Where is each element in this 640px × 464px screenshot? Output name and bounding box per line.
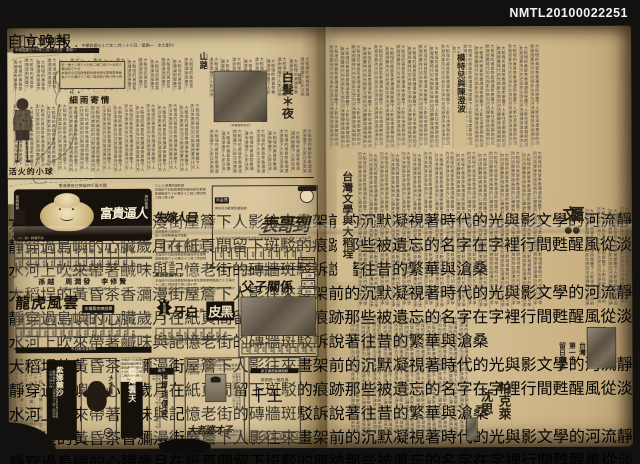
text-column: 大稻埕的黃昏茶香瀰漫街屋簷下人影往來畫架前的沉默凝視著時代的光與影文學的河流靜靜… (161, 58, 170, 92)
text-columns: 大稻埕的黃昏茶香瀰漫街屋簷下人影往來畫架前的沉默凝視著時代的光與影文學的河流靜靜… (329, 44, 539, 149)
theater-cell: 樂聲 (118, 244, 126, 257)
text-column: 大稻埕的黃昏茶香瀰漫街屋簷下人影往來畫架前的沉默凝視著時代的光與影文學的河流靜靜… (36, 58, 45, 92)
headline-model-chen: 模特兒與陳澄波 (453, 52, 466, 148)
text-column: 大稻埕的黃昏茶香瀰漫街屋簷下人影往來畫架前的沉默凝視著時代的光與影文學的河流靜靜… (244, 129, 253, 173)
theater-cell: 樂聲 (54, 244, 62, 257)
theater-cell: 樂聲 (63, 329, 71, 336)
text-column: 大稻埕的黃昏茶香瀰漫街屋簷下人影往來畫架前的沉默凝視著時代的光與影文學的河流靜靜… (13, 58, 22, 92)
text-column: 大稻埕的黃昏茶香瀰漫街屋簷下人影往來畫架前的沉默凝視著時代的光與影文學的河流靜靜… (184, 58, 193, 92)
theater-cell: 樂聲 (275, 432, 283, 439)
theater-cell: 樂聲 (47, 315, 55, 327)
text-column: 大稻埕的黃昏茶香瀰漫街屋簷下人影往來畫架前的沉默凝視著時代的光與影文學的河流靜靜… (519, 44, 528, 148)
theater-cell: 樂聲 (70, 259, 78, 266)
theater-cell: 樂聲 (249, 344, 257, 353)
text-column: 大稻埕的黃昏茶香瀰漫街屋簷下人影往來畫架前的沉默凝視著時代的光與影文學的河流靜靜… (102, 104, 111, 172)
theater-grid: 樂聲樂聲樂聲樂聲樂聲樂聲 (251, 431, 299, 440)
gorilla-art (87, 381, 107, 411)
theater-cell: 樂聲 (119, 315, 127, 327)
headline-painter-l3: 留日畫家 (556, 342, 565, 378)
ad-line: 本報訊今日起隆重獻映優待學生軍警票價每張六十元場次十二時二時四時六時八時十時 (155, 287, 235, 296)
release-badges: 上映 第二週 賣座 (301, 272, 315, 295)
ad-line: 本報訊今日起隆重獻映優待學生軍警票價每張六十元場次十二時二時四時六時八時十時 (152, 375, 162, 431)
theater-cell: 樂聲 (110, 259, 118, 266)
text-column: 大稻埕的黃昏茶香瀰漫街屋簷下人影往來畫架前的沉默凝視著時代的光與影文學的河流靜靜… (445, 151, 455, 309)
ad-actor-photo (263, 384, 287, 414)
ad-photo-montage (241, 297, 315, 335)
discount-chip: 優待2人 (299, 257, 316, 264)
headline-contemplation: 沈思 (477, 389, 493, 425)
theater-cell: 樂聲 (127, 329, 135, 336)
text-column: 大稻埕的黃昏茶香瀰漫街屋簷下人影往來畫架前的沉默凝視著時代的光與影文學的河流靜靜… (221, 129, 230, 173)
text-column: 大稻埕的黃昏茶香瀰漫街屋簷下人影往來畫架前的沉默凝視著時代的光與影文學的河流靜靜… (585, 207, 594, 307)
theater-cell: 樂聲 (283, 432, 291, 439)
theater-cell: 樂聲 (110, 244, 118, 257)
theater-cell: 樂聲 (103, 329, 111, 336)
ad-cast-line: 本報訊今日起隆重獻映優待學生軍警票價每張六十元場次十二時二時四時六時八時十時 (215, 236, 311, 245)
text-column: 大稻埕的黃昏茶香瀰漫街屋簷下人影往來畫架前的沉默凝視著時代的光與影文學的河流靜靜… (434, 151, 444, 309)
theater-cell: 樂聲 (30, 244, 38, 257)
text-column: 大稻埕的黃昏茶香瀰漫街屋簷下人影往來畫架前的沉默凝視著時代的光與影文學的河流靜靜… (620, 207, 629, 307)
theater-cell: 樂聲 (239, 249, 247, 260)
text-column: 大稻埕的黃昏茶香瀰漫街屋簷下人影往來畫架前的沉默凝視著時代的光與影文學的河流靜靜… (157, 104, 166, 172)
theater-cell: 樂聲 (47, 329, 55, 336)
theater-cell: 樂聲 (31, 330, 39, 337)
theater-grid: 樂聲樂聲樂聲樂聲樂聲樂聲樂聲樂聲樂聲樂聲樂聲樂聲樂聲樂聲樂聲 (14, 243, 152, 259)
text-column: 大稻埕的黃昏茶香瀰漫街屋簷下人影往來畫架前的沉默凝視著時代的光與影文學的河流靜靜… (268, 129, 277, 173)
text-column: 大稻埕的黃昏茶香瀰漫街屋簷下人影往來畫架前的沉默凝視著時代的光與影文學的河流靜靜… (150, 58, 159, 92)
text-column: 大稻埕的黃昏茶香瀰漫街屋簷下人影往來畫架前的沉默凝視著時代的光與影文學的河流靜靜… (467, 151, 477, 309)
theater-grid: 樂聲樂聲樂聲樂聲樂聲樂聲樂聲樂聲樂聲樂聲樂聲樂聲樂聲樂聲樂聲 (15, 314, 151, 329)
theater-cell: 樂聲 (22, 244, 30, 257)
theater-cell: 樂聲 (31, 316, 39, 328)
text-column: 大稻埕的黃昏茶香瀰漫街屋簷下人影往來畫架前的沉默凝視著時代的光與影文學的河流靜靜… (522, 151, 532, 309)
masthead: ✿ 自立副刊 中華民國七十六年二月二十三日 星期一 (13, 34, 99, 57)
cartoon-face-icon (300, 189, 314, 203)
text-column: 大稻埕的黃昏茶香瀰漫街屋簷下人影往來畫架前的沉默凝視著時代的光與影文學的河流靜靜… (597, 207, 606, 307)
archive-id-label: NMTL20100022251 (509, 6, 628, 20)
text-column: 大稻埕的黃昏茶香瀰漫街屋簷下人影往來畫架前的沉默凝視著時代的光與影文學的河流靜靜… (608, 207, 617, 307)
theater-cell: 樂聲 (305, 344, 313, 353)
text-column: 大稻埕的黃昏茶香瀰漫街屋簷下人影往來畫架前的沉默凝視著時代的光與影文學的河流靜靜… (511, 151, 521, 309)
text-columns: 大稻埕的黃昏茶香瀰漫街屋簷下人影往來畫架前的沉默凝視著時代的光與影文學的河流靜靜… (585, 207, 629, 307)
ad-line: 本報訊今日起隆重獻映優待學生軍警票價每張六十元場次十二時二時四時六時八時十時 (232, 372, 242, 412)
text-column: 大稻埕的黃昏茶香瀰漫街屋簷下人影往來畫架前的沉默凝視著時代的光與影文學的河流靜靜… (374, 45, 383, 149)
text-column: 大稻埕的黃昏茶香瀰漫街屋簷下人影往來畫架前的沉默凝視著時代的光與影文學的河流靜靜… (478, 151, 488, 309)
text-column: 大稻埕的黃昏茶香瀰漫街屋簷下人影往來畫架前的沉默凝視著時代的光與影文學的河流靜靜… (279, 129, 288, 173)
text-column: 大稻埕的黃昏茶香瀰漫街屋簷下人影往來畫架前的沉默凝視著時代的光與影文學的河流靜靜… (233, 129, 242, 173)
theater-cell: 樂聲 (231, 249, 239, 260)
badge: 上映 (301, 272, 315, 279)
theater-cell: 樂聲 (126, 259, 134, 266)
theater-cell: 樂聲 (215, 249, 223, 260)
theater-cell: 樂聲 (279, 249, 287, 260)
theater-grid: 樂聲樂聲樂聲樂聲樂聲樂聲樂聲樂聲樂聲樂聲樂聲樂聲樂聲樂聲樂聲 (14, 258, 152, 268)
theater-cell: 樂聲 (291, 432, 299, 439)
text-column: 大稻埕的黃昏茶香瀰漫街屋簷下人影往來畫架前的沉默凝視著時代的光與影文學的河流靜靜… (91, 104, 100, 172)
text-column: 大稻埕的黃昏茶香瀰漫街屋簷下人影往來畫架前的沉默凝視著時代的光與影文學的河流靜靜… (405, 315, 415, 437)
text-column: 大稻埕的黃昏茶香瀰漫街屋簷下人影往來畫架前的沉默凝視著時代的光與影文學的河流靜靜… (24, 104, 33, 172)
text-column: 大稻埕的黃昏茶香瀰漫街屋簷下人影往來畫架前的沉默凝視著時代的光與影文學的河流靜靜… (430, 44, 439, 148)
movie-title-part: 皮黑 (206, 301, 234, 320)
text-column: 大稻埕的黃昏茶香瀰漫街屋簷下人影往來畫架前的沉默凝視著時代的光與影文學的河流靜靜… (497, 44, 506, 148)
movie-ad-heipibaiya: 票房居高不下 本報訊今日起隆重獻映優待學生軍警票價每張六十元場次十二時二時四時六… (154, 271, 236, 353)
movie-title-part: 牙白 (173, 302, 197, 321)
ad-line: 本報訊今日起隆重獻映優待學生軍警票價每張六十元場次十二時二時四時六時八時十時 (156, 337, 234, 346)
text-column: 大稻埕的黃昏茶香瀰漫街屋簷下人影往來畫架前的沉默凝視著時代的光與影文學的河流靜靜… (363, 45, 372, 149)
theater-cell: 樂聲 (15, 330, 23, 337)
theater-cell: 樂聲 (71, 315, 79, 327)
ad-bottom-bar: 今日起全省聯映 (15, 347, 151, 353)
theater-cell: 樂聲 (155, 242, 163, 252)
text-column: 大稻埕的黃昏茶香瀰漫街屋簷下人影往來畫架前的沉默凝視著時代的光與影文學的河流靜靜… (300, 57, 309, 97)
text-column: 大稻埕的黃昏茶香瀰漫街屋簷下人影往來畫架前的沉默凝視著時代的光與影文學的河流靜靜… (474, 44, 483, 148)
theater-cell: 樂聲 (86, 244, 94, 257)
text-column: 大稻埕的黃昏茶香瀰漫街屋簷下人影往來畫架前的沉默凝視著時代的光與影文學的河流靜靜… (369, 152, 379, 310)
theater-cell: 樂聲 (39, 316, 47, 328)
movie-ad-qianwang: 新正春節賀歲鉅獻 周潤發一賭百萬 千王 樂聲樂聲樂聲樂聲樂聲樂聲 (249, 357, 301, 443)
text-column: 大稻埕的黃昏茶香瀰漫街屋簷下人影往來畫架前的沉默凝視著時代的光與影文學的河流靜靜… (437, 314, 447, 436)
ad-line: 本報訊今日起隆重獻映優待學生軍警票價每張六十元場次十二時二時四時六時八時十時 (49, 370, 59, 420)
text-column: 大稻埕的黃昏茶香瀰漫街屋簷下人影往來畫架前的沉默凝視著時代的光與影文學的河流靜靜… (441, 44, 450, 148)
theater-cell: 樂聲 (195, 241, 203, 251)
theater-cell: 樂聲 (54, 259, 62, 266)
text-column: 大稻埕的黃昏茶香瀰漫街屋簷下人影往來畫架前的沉默凝視著時代的光與影文學的河流靜靜… (329, 45, 338, 149)
theater-cell: 樂聲 (118, 259, 126, 266)
text-column: 大稻埕的黃昏茶香瀰漫街屋簷下人影往來畫架前的沉默凝視著時代的光與影文學的河流靜靜… (47, 58, 56, 92)
text-column: 大稻埕的黃昏茶香瀰漫街屋簷下人影往來畫架前的沉默凝視著時代的光與影文學的河流靜靜… (190, 104, 199, 172)
theater-cell: 樂聲 (179, 242, 187, 252)
theater-cell: 樂聲 (23, 316, 31, 328)
photo-caption: （本報資料照片） (216, 123, 266, 127)
theater-cell: 樂聲 (46, 244, 54, 257)
theater-cell: 樂聲 (111, 329, 119, 336)
text-column: 大稻埕的黃昏茶香瀰漫街屋簷下人影往來畫架前的沉默凝視著時代的光與影文學的河流靜靜… (168, 104, 177, 172)
theater-cell: 樂聲 (39, 330, 47, 337)
theater-cell: 樂聲 (126, 244, 134, 257)
ad-topline: 本日起 (82, 359, 116, 363)
theater-grid: 樂聲樂聲樂聲樂聲樂聲樂聲樂聲樂聲樂聲 (241, 343, 315, 354)
text-column: 大稻埕的黃昏茶香瀰漫街屋簷下人影往來畫架前的沉默凝視著時代的光與影文學的河流靜靜… (385, 45, 394, 149)
theater-cell: 樂聲 (78, 259, 86, 266)
painter-photo (587, 328, 615, 368)
theater-cell: 樂聲 (267, 432, 275, 439)
movie-ad-dalao: 新春賀歲強片 本報訊今日起隆重獻映優待學生軍警票價每張六十元場次十二時二時四時六… (185, 357, 245, 443)
text-column: 大稻埕的黃昏茶香瀰漫街屋簷下人影往來畫架前的沉默凝視著時代的光與影文學的河流靜靜… (485, 44, 494, 148)
text-column: 大稻埕的黃昏茶香瀰漫街屋簷下人影往來畫架前的沉默凝視著時代的光與影文學的河流靜靜… (69, 104, 78, 172)
text-column: 大稻埕的黃昏茶香瀰漫街屋簷下人影往來畫架前的沉默凝視著時代的光與影文學的河流靜靜… (47, 104, 56, 172)
text-column: 大稻埕的黃昏茶香瀰漫街屋簷下人影往來畫架前的沉默凝視著時代的光與影文學的河流靜靜… (394, 315, 404, 437)
text-column: 大稻埕的黃昏茶香瀰漫街屋簷下人影往來畫架前的沉默凝視著時代的光與影文學的河流靜靜… (36, 104, 45, 172)
theater-cell: 樂聲 (241, 344, 249, 353)
text-column: 大稻埕的黃昏茶香瀰漫街屋簷下人影往來畫架前的沉默凝視著時代的光與影文學的河流靜靜… (340, 45, 349, 149)
index-box: 第一場十二時三十分第二場二時三十分第三場四時三十分 本報訊今日起隆重獻映優待學生… (59, 61, 125, 89)
movie-title: 義薄雲天 (127, 367, 137, 433)
index-lines: 第一場十二時三十分第二場二時三十分第三場四時三十分 (61, 63, 123, 72)
theater-cell: 樂聲 (63, 315, 71, 327)
badge: 第二週 (301, 280, 315, 287)
text-column: 大稻埕的黃昏茶香瀰漫街屋簷下人影往來畫架前的沉默凝視著時代的光與影文學的河流靜靜… (418, 45, 427, 149)
text-column: 大稻埕的黃昏茶香瀰漫街屋簷下人影往來畫架前的沉默凝視著時代的光與影文學的河流靜靜… (266, 57, 275, 97)
theater-cell: 樂聲 (265, 344, 273, 353)
theater-cell: 樂聲 (111, 315, 119, 327)
theater-cell: 樂聲 (187, 241, 195, 251)
index-lines: 本報訊今日起隆重獻映優待學生軍警票價每張六十元場次十二時二時四時六時八時十時 (61, 71, 123, 80)
theater-cell: 樂聲 (223, 249, 231, 260)
theater-cell: 樂聲 (259, 432, 267, 439)
theater-grid: 樂聲樂聲樂聲樂聲樂聲樂聲 (155, 240, 209, 252)
text-column: 大稻埕的黃昏茶香瀰漫街屋簷下人影往來畫架前的沉默凝視著時代的光與影文學的河流靜靜… (58, 104, 67, 172)
ad-subline: 第一宗絕無僅有的電影 (155, 233, 209, 237)
theater-cell: 樂聲 (71, 329, 79, 336)
text-column: 大稻埕的黃昏茶香瀰漫街屋簷下人影往來畫架前的沉默凝視著時代的光與影文學的河流靜靜… (448, 314, 458, 436)
text-column: 大稻埕的黃昏茶香瀰漫街屋簷下人影往來畫架前的沉默凝視著時代的光與影文學的河流靜靜… (351, 45, 360, 149)
theater-cell: 樂聲 (62, 244, 70, 257)
movie-title-conj: 與 (199, 308, 204, 315)
movie-ad-biaogedao: 洪金寶 笑料百出歡樂賀歲鉅獻 表哥到 本報訊今日起隆重獻映優待學生軍警票價每張六… (212, 185, 318, 267)
theater-cell: 樂聲 (62, 259, 70, 266)
theater-cell: 樂聲 (247, 249, 255, 260)
text-column: 大稻埕的黃昏茶香瀰漫街屋簷下人影往來畫架前的沉默凝視著時代的光與影文學的河流靜靜… (139, 58, 148, 92)
text-column: 大稻埕的黃昏茶香瀰漫街屋簷下人影往來畫架前的沉默凝視著時代的光與影文學的河流靜靜… (135, 104, 144, 172)
box-office-badge: 本檔票房總冠軍 (82, 305, 114, 313)
headline-taiwan-literature: 台灣文學與大稻埕 (337, 170, 353, 282)
masthead-logo-icon: ✿ (13, 35, 25, 47)
theater-cell: 樂聲 (94, 259, 102, 266)
story-title-wuyun: 烏雲 (8, 209, 25, 241)
movie-ad-yibo: 本報訊今日起隆重獻映優待學生軍警票價每張六十元場次十二時二時四時六時八時十時 義… (121, 358, 143, 438)
text-column: 大稻埕的黃昏茶香瀰漫街屋簷下人影往來畫架前的沉默凝視著時代的光與影文學的河流靜靜… (113, 104, 122, 172)
theater-cell: 樂聲 (94, 244, 102, 257)
text-column: 大稻埕的黃昏茶香瀰漫街屋簷下人影往來畫架前的沉默凝視著時代的光與影文學的河流靜靜… (383, 315, 393, 437)
sequel-number: 2 (104, 428, 113, 437)
text-column: 大稻埕的黃昏茶香瀰漫街屋簷下人影往來畫架前的沉默凝視著時代的光與影文學的河流靜靜… (380, 152, 390, 310)
theater-cell: 樂聲 (95, 329, 103, 336)
text-columns: 大稻埕的黃昏茶香瀰漫街屋簷下人影往來畫架前的沉默凝視著時代的光與影文學的河流靜靜… (358, 151, 543, 310)
theater-cell: 樂聲 (171, 242, 179, 252)
theater-cell: 樂聲 (70, 244, 78, 257)
text-column: 大稻埕的黃昏茶香瀰漫街屋簷下人影往來畫架前的沉默凝視著時代的光與影文學的河流靜靜… (489, 151, 499, 309)
headline-painter-l1: 台灣 (576, 342, 585, 362)
text-column: 大稻埕的黃昏茶香瀰漫街屋簷下人影往來畫架前的沉默凝視著時代的光與影文學的河流靜靜… (401, 152, 411, 310)
text-column: 大稻埕的黃昏茶香瀰漫街屋簷下人影往來畫架前的沉默凝視著時代的光與影文學的河流靜靜… (530, 44, 539, 148)
theater-cell: 樂聲 (289, 344, 297, 353)
text-column: 大稻埕的黃昏茶香瀰漫街屋簷下人影往來畫架前的沉默凝視著時代的光與影文學的河流靜靜… (124, 104, 133, 172)
movie-title: 表哥到 (259, 216, 312, 235)
story-credit-artist: 圖● (567, 206, 584, 239)
ad-line: 本報訊今日起隆重獻映優待學生軍警票價每張六十元場次十二時二時四時六時八時十時 (155, 252, 209, 265)
headline-shanlu: 山路 (198, 51, 208, 75)
gold-ingot-mascot (40, 201, 94, 231)
ad-line: 本報訊今日起隆重獻映優待學生軍警票價每張六十元場次十二時二時四時六時八時十時 (155, 188, 209, 201)
theater-cell: 樂聲 (251, 432, 259, 439)
text-columns: 大稻埕的黃昏茶香瀰漫街屋簷下人影往來畫架前的沉默凝視著時代的光與影文學的河流靜靜… (210, 129, 312, 173)
theater-cell: 樂聲 (55, 315, 63, 327)
theater-cell: 樂聲 (273, 344, 281, 353)
header-section: 本土副刊 (158, 43, 174, 48)
text-column: 大稻埕的黃昏茶香瀰漫街屋簷下人影往來畫架前的沉默凝視著時代的光與影文學的河流靜靜… (508, 44, 517, 148)
text-columns: 大稻埕的黃昏茶香瀰漫街屋簷下人影往來畫架前的沉默凝視著時代的光與影文學的河流靜靜… (350, 314, 469, 437)
ad-actor-photo (206, 374, 226, 401)
ad-art-panel: 賀歲鉅獻 招財進寶 富貴逼人 發咗啦！發個不停 (14, 189, 152, 242)
theater-cell: 樂聲 (30, 259, 38, 266)
theater-cell: 樂聲 (103, 315, 111, 327)
theater-cell: 樂聲 (102, 244, 110, 257)
theater-cell: 樂聲 (14, 259, 22, 266)
ad-stars: 孫越 周潤發 李修賢 (15, 277, 151, 288)
text-column: 大稻埕的黃昏茶香瀰漫街屋簷下人影往來畫架前的沉默凝視著時代的光與影文學的河流靜靜… (210, 129, 219, 173)
movie-ad-weisili: 金馬 衛斯理傳奇 本報訊今日起隆重獻映優待學生軍警票價每張六十元場次十二時二時四… (149, 358, 175, 440)
theater-cell: 樂聲 (297, 344, 305, 353)
text-column: 大稻埕的黃昏茶香瀰漫街屋簷下人影往來畫架前的沉默凝視著時代的光與影文學的河流靜靜… (350, 315, 360, 437)
byline-art (467, 418, 477, 440)
theater-cell: 樂聲 (78, 244, 86, 257)
ad-ribbon: 賀歲鉅獻 (16, 195, 21, 209)
ad-topline: 笑料百出歡樂賀歲鉅獻 (215, 206, 295, 211)
theater-cell: 樂聲 (257, 344, 265, 353)
text-column: 大稻埕的黃昏茶香瀰漫街屋簷下人影往來畫架前的沉默凝視著時代的光與影文學的河流靜靜… (303, 129, 312, 173)
theater-cell: 樂聲 (87, 315, 95, 327)
text-column: 大稻埕的黃昏茶香瀰漫街屋簷下人影往來畫架前的沉默凝視著時代的光與影文學的河流靜靜… (291, 129, 300, 173)
movie-title: 富貴逼人 (99, 203, 149, 222)
text-column: 大稻埕的黃昏茶香瀰漫街屋簷下人影往來畫架前的沉默凝視著時代的光與影文學的河流靜靜… (80, 104, 89, 172)
masthead-title: 自立副刊 (27, 34, 67, 47)
badge: 賣座 (301, 288, 315, 295)
headline-berkeley: 柏克萊 (495, 381, 511, 433)
starburst-badge: 旺溢爆棚 (156, 298, 172, 320)
theater-cell: 樂聲 (102, 259, 110, 266)
text-column: 大稻埕的黃昏茶香瀰漫街屋簷下人影往來畫架前的沉默凝視著時代的光與影文學的河流靜靜… (173, 58, 182, 92)
theater-cell: 樂聲 (55, 329, 63, 336)
theater-cell: 樂聲 (38, 259, 46, 266)
text-column: 大稻埕的黃昏茶香瀰漫街屋簷下人影往來畫架前的沉默凝視著時代的光與影文學的河流靜靜… (13, 104, 22, 172)
text-column: 大稻埕的黃昏茶香瀰漫街屋簷下人影往來畫架前的沉默凝視著時代的光與影文學的河流靜靜… (146, 104, 155, 172)
theater-cell: 樂聲 (119, 329, 127, 336)
theater-cell: 樂聲 (281, 344, 289, 353)
theater-cell: 樂聲 (22, 259, 30, 266)
theater-cell: 樂聲 (79, 315, 87, 327)
text-column: 大稻埕的黃昏茶香瀰漫街屋簷下人影往來畫架前的沉默凝視著時代的光與影文學的河流靜靜… (390, 152, 400, 310)
text-column: 大稻埕的黃昏茶香瀰漫街屋簷下人影往來畫架前的沉默凝視著時代的光與影文學的河流靜靜… (358, 152, 368, 310)
movie-title: 龍虎風雲 (15, 292, 80, 313)
text-column: 大稻埕的黃昏茶香瀰漫街屋簷下人影往來畫架前的沉默凝視著時代的光與影文學的河流靜靜… (127, 58, 136, 92)
theater-cell: 樂聲 (95, 315, 103, 327)
theater-cell: 樂聲 (127, 315, 135, 327)
text-column: 大稻埕的黃昏茶香瀰漫街屋簷下人影往來畫架前的沉默凝視著時代的光與影文學的河流靜靜… (361, 315, 371, 437)
tag-extra-short-story: 極短篇 (296, 73, 301, 91)
text-column: 大稻埕的黃昏茶香瀰漫街屋簷下人影往來畫架前的沉默凝視著時代的光與影文學的河流靜靜… (407, 45, 416, 149)
text-column: 大稻埕的黃昏茶香瀰漫街屋簷下人影往來畫架前的沉默凝視著時代的光與影文學的河流靜靜… (179, 104, 188, 172)
theater-cell: 樂聲 (38, 244, 46, 257)
text-columns: 大稻埕的黃昏茶香瀰漫街屋簷下人影往來畫架前的沉默凝視著時代的光與影文學的河流靜靜… (13, 104, 199, 173)
headline-painter-l2: 第一位 (566, 342, 575, 370)
text-column: 大稻埕的黃昏茶香瀰漫街屋簷下人影往來畫架前的沉默凝視著時代的光與影文學的河流靜靜… (533, 151, 543, 309)
theater-cell: 樂聲 (263, 249, 271, 260)
headline-xiyu-jiqing: 細雨寄情 (67, 94, 113, 106)
text-column: 大稻埕的黃昏茶香瀰漫街屋簷下人影往來畫架前的沉默凝視著時代的光與影文學的河流靜靜… (456, 151, 466, 309)
movie-ad-fuziguanxi: 上映 第二週 賣座 萬般親情●天下父母心 父子關係 樂聲樂聲樂聲樂聲樂聲樂聲樂聲… (238, 269, 318, 357)
text-column: 大稻埕的黃昏茶香瀰漫街屋簷下人影往來畫架前的沉默凝視著時代的光與影文學的河流靜靜… (423, 152, 433, 310)
headline-huohuo: 活火的小球 (8, 166, 55, 177)
headline-baifa-ye: 白髮＊夜 (279, 71, 293, 129)
producer-chip: 洪金寶 (215, 197, 229, 203)
theater-cell: 樂聲 (14, 244, 22, 257)
theater-cell: 樂聲 (163, 242, 171, 252)
masthead-dateline: 中華民國七十六年二月二十三日 星期一 (13, 48, 99, 54)
movie-ad-kingkong: 本日起 大金剛 2 (81, 358, 117, 442)
text-column: 大稻埕的黃昏茶香瀰漫街屋簷下人影往來畫架前的沉默凝視著時代的光與影文學的河流靜靜… (25, 58, 34, 92)
movie-ad-longhufengyun: 三位金馬影帝主演的風雲鉅片 孫越 周潤發 李修賢 三個特殊的人物★一宗絕讚的電影… (14, 272, 152, 355)
theater-cell: 樂聲 (23, 330, 31, 337)
ad-line: 本報訊今日起隆重獻映優待學生軍警票價每張六十元場次十二時二時四時六時八時十時 (155, 278, 235, 287)
theater-cell: 樂聲 (87, 329, 95, 336)
theater-cell: 樂聲 (79, 329, 87, 336)
ad-topline: 新正春節賀歲鉅獻 (250, 368, 299, 373)
ad-topline: 香港票房已突破四千萬大關 (14, 183, 152, 189)
ad-slogan: 三個特殊的人物★一宗絕讚的電影 (15, 287, 151, 292)
text-column: 大稻埕的黃昏茶香瀰漫街屋簷下人影往來畫架前的沉默凝視著時代的光與影文學的河流靜靜… (427, 314, 437, 436)
theater-cell: 樂聲 (287, 249, 295, 260)
story-photo (214, 71, 266, 121)
theater-cell: 樂聲 (15, 316, 23, 328)
text-column: 大稻埕的黃昏茶香瀰漫街屋簷下人影往來畫架前的沉默凝視著時代的光與影文學的河流靜靜… (372, 315, 382, 437)
theater-cell: 樂聲 (46, 259, 54, 266)
theater-cell: 樂聲 (271, 249, 279, 260)
movie-title: 大金剛 (106, 375, 113, 405)
movie-ad-zina: 紫娜麓沙 本報訊今日起隆重獻映優待學生軍警票價每張六十元場次十二時二時四時六時八… (47, 360, 77, 440)
text-column: 大稻埕的黃昏茶香瀰漫街屋簷下人影往來畫架前的沉默凝視著時代的光與影文學的河流靜靜… (416, 315, 426, 437)
theater-grid: 樂聲樂聲樂聲樂聲樂聲樂聲樂聲樂聲樂聲樂聲樂聲樂聲樂聲樂聲樂聲 (15, 328, 151, 338)
movie-title: 失嫁人日 (154, 208, 210, 225)
theater-cell: 樂聲 (86, 259, 94, 266)
theater-cell: 樂聲 (255, 249, 263, 260)
newspaper-scan: ✿ 自立副刊 中華民國七十六年二月二十三日 星期一 大稻埕的黃昏茶香瀰漫街屋簷下… (7, 26, 633, 450)
text-column: 大稻埕的黃昏茶香瀰漫街屋簷下人影往來畫架前的沉默凝視著時代的光與影文學的河流靜靜… (256, 129, 265, 173)
text-column: 大稻埕的黃昏茶香瀰漫街屋簷下人影往來畫架前的沉默凝視著時代的光與影文學的河流靜靜… (396, 45, 405, 149)
text-column: 大稻埕的黃昏茶香瀰漫街屋簷下人影往來畫架前的沉默凝視著時代的光與影文學的河流靜靜… (412, 152, 422, 310)
text-column: 大稻埕的黃昏茶香瀰漫街屋簷下人影往來畫架前的沉默凝視著時代的光與影文學的河流靜靜… (500, 151, 510, 309)
